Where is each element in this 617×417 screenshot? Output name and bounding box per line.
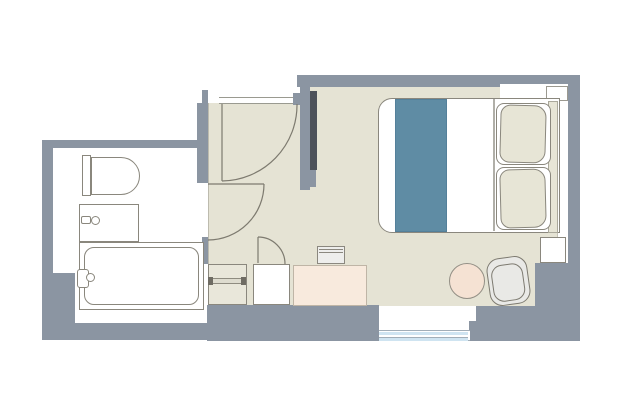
vanity-faucet-knob — [91, 216, 100, 225]
wall-tv-bracket — [310, 170, 316, 187]
desk-tv-screen — [319, 249, 343, 253]
wall-left — [42, 140, 53, 340]
storage-cabinet — [253, 264, 290, 305]
wall-bathroom-top — [42, 140, 207, 148]
wall-bottom-middle — [207, 305, 379, 341]
window-sill — [379, 321, 469, 330]
round-stool — [449, 263, 485, 299]
wall-left-step — [53, 273, 75, 323]
toilet-tank — [82, 155, 91, 196]
wall-corner-bottom-right — [535, 263, 580, 340]
floor-plan — [0, 0, 617, 417]
desk — [293, 265, 367, 306]
desk-tv — [317, 246, 345, 264]
window — [379, 330, 470, 341]
vanity-faucet — [81, 216, 91, 224]
window-glass-inner — [379, 337, 468, 341]
wall-divider-upper — [197, 103, 208, 183]
window-glass-outer — [379, 332, 468, 335]
pillow-top — [499, 104, 547, 163]
shelf-rail-end-right — [241, 277, 246, 285]
wall-divider-nib — [202, 90, 208, 104]
wall-tv — [310, 91, 317, 170]
bed-runner — [395, 99, 447, 232]
shelf-rail-end-left — [208, 277, 213, 285]
wall-stub-tv — [300, 87, 310, 190]
window-recess — [379, 306, 476, 321]
nightstand — [540, 237, 566, 263]
pillow-bottom — [499, 168, 547, 228]
bathtub-faucet-knob — [86, 273, 95, 282]
wall-bottom-left — [42, 323, 207, 340]
toilet-bowl — [91, 157, 140, 195]
bathtub-basin — [84, 247, 199, 305]
lounge-chair — [485, 254, 532, 307]
lounge-chair-seat — [490, 262, 527, 303]
